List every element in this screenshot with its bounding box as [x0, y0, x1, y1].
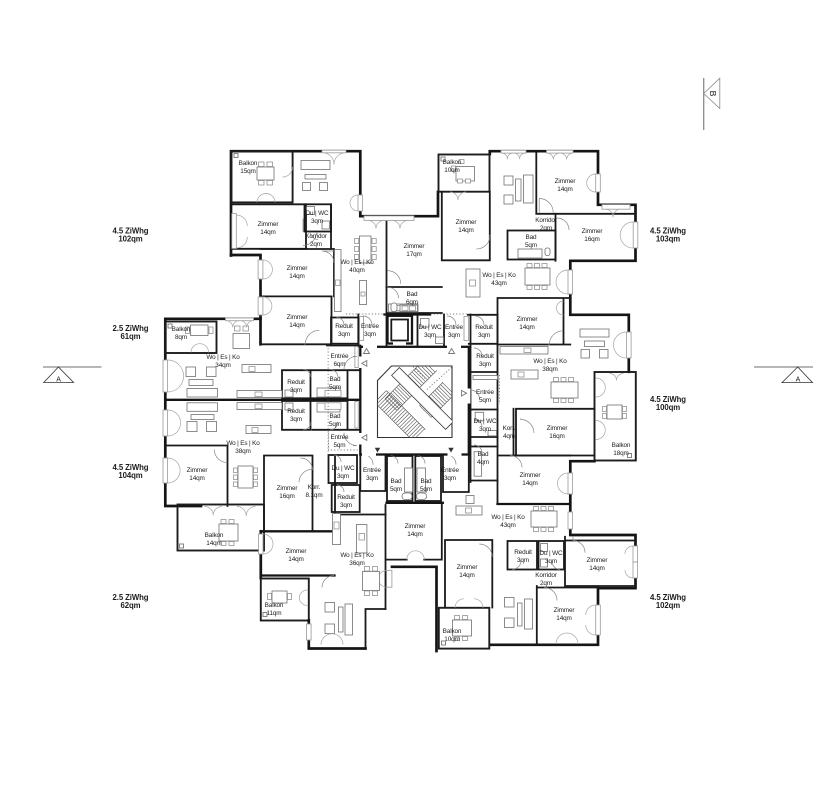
svg-text:Balkon14qm: Balkon14qm: [205, 532, 224, 547]
svg-text:A: A: [56, 377, 61, 384]
svg-text:Korr.4qm: Korr.4qm: [503, 425, 516, 440]
svg-text:Korr.8.1qm: Korr.8.1qm: [305, 484, 322, 499]
svg-text:Bad5qm: Bad5qm: [390, 478, 402, 493]
svg-text:Bad5qm: Bad5qm: [329, 376, 341, 391]
svg-text:Bad4qm: Bad4qm: [477, 451, 489, 466]
svg-text:Balkon10qm: Balkon10qm: [443, 159, 462, 174]
svg-text:Bad5qm: Bad5qm: [525, 234, 537, 249]
svg-text:Balkon11qm: Balkon11qm: [265, 602, 284, 617]
svg-text:Bad5qm: Bad5qm: [329, 413, 341, 428]
svg-text:Bad5qm: Bad5qm: [420, 478, 432, 493]
svg-text:Balkon18qm: Balkon18qm: [612, 442, 631, 457]
svg-text:B: B: [708, 91, 718, 97]
svg-text:Bad6qm: Bad6qm: [406, 291, 418, 306]
svg-text:Balkon15qm: Balkon15qm: [239, 160, 258, 175]
svg-text:A: A: [796, 377, 801, 384]
